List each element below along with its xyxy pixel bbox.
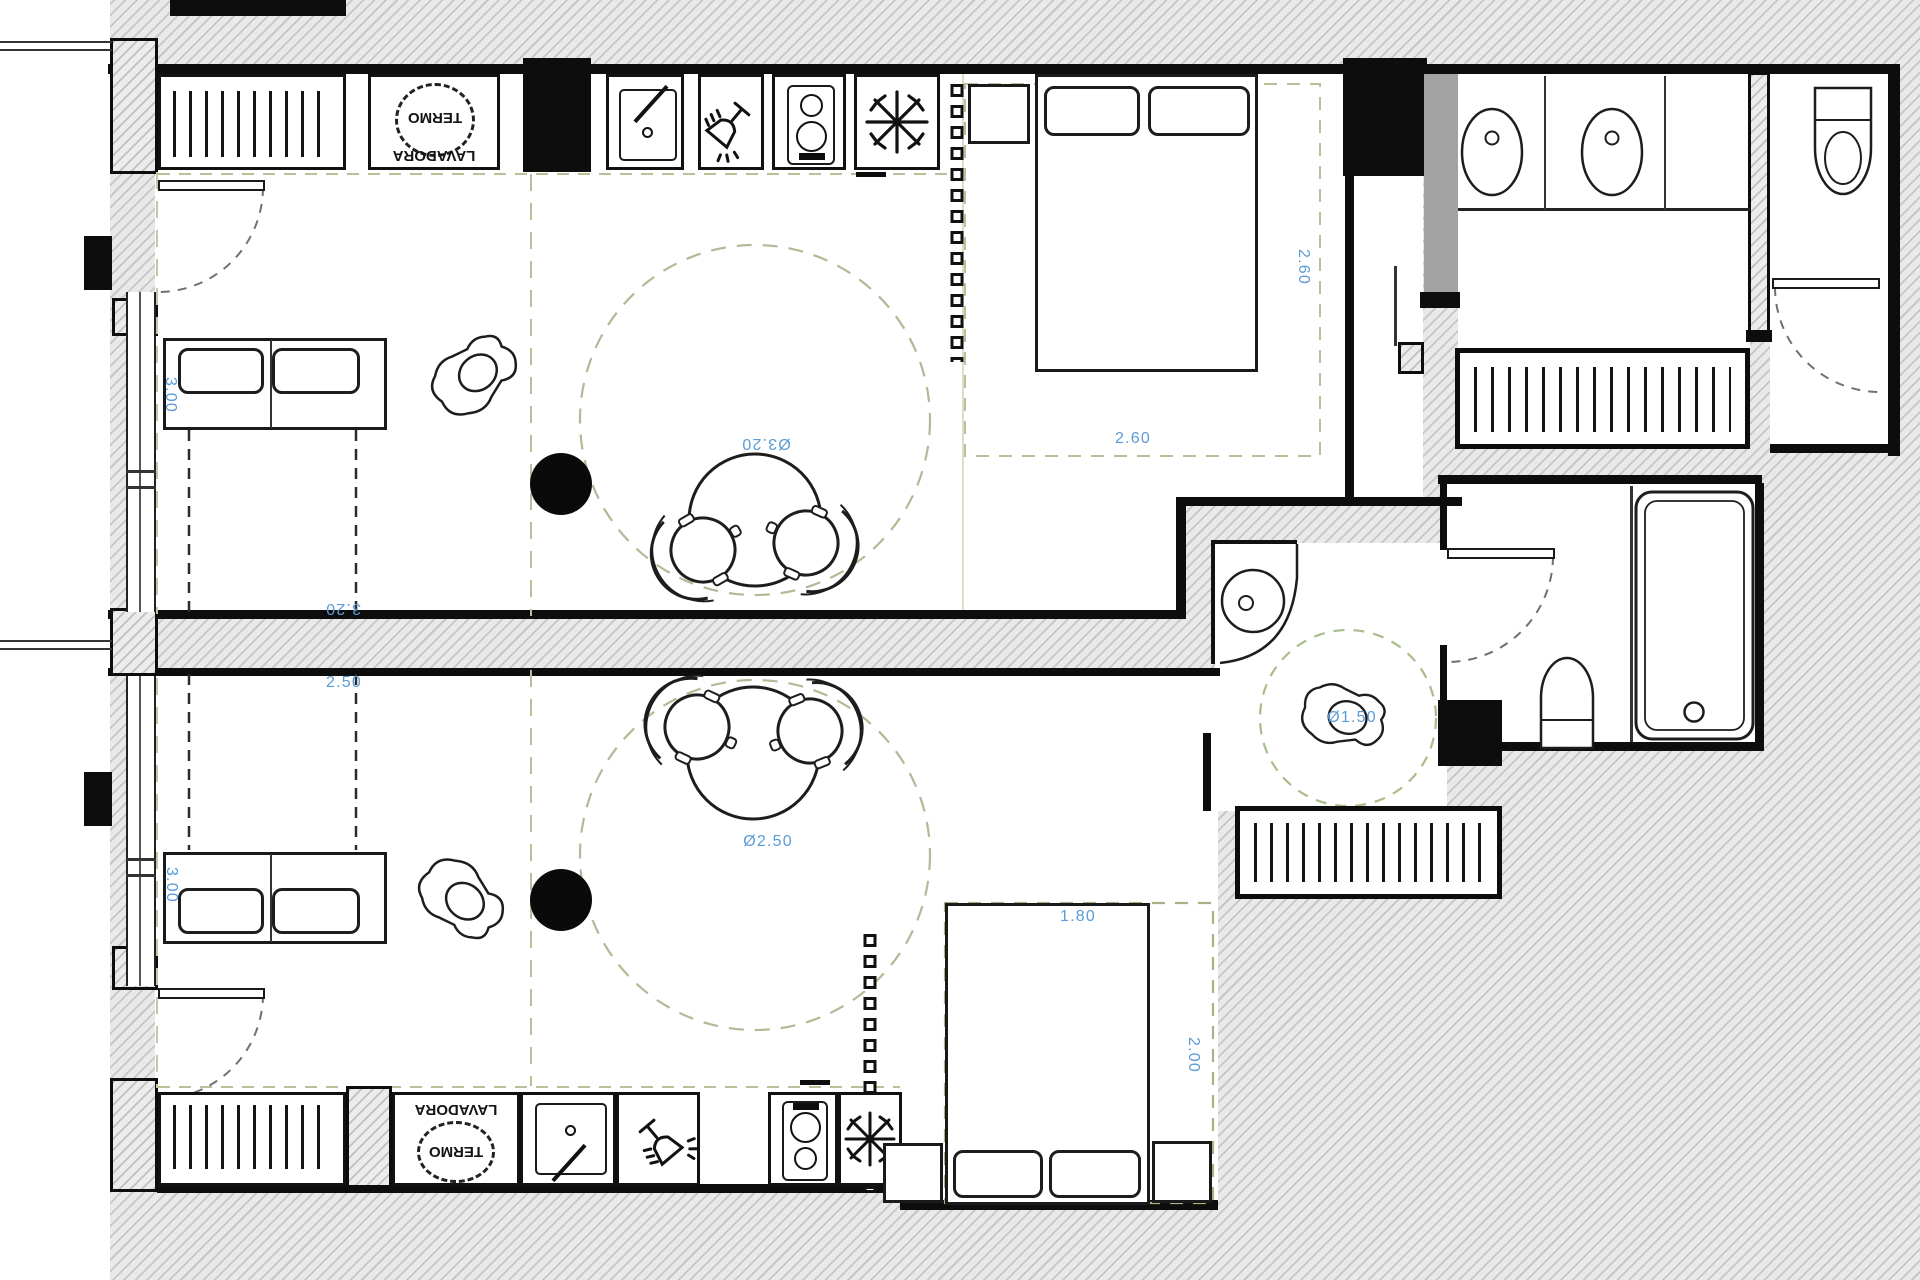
upper-water-heater-box: TERMO LAVADORA <box>368 74 500 170</box>
water-heater-label: TERMO <box>419 1143 493 1160</box>
upper-hob-box <box>772 74 846 170</box>
vanity-sink-right-icon <box>1582 109 1642 195</box>
toilet-top-icon <box>1815 88 1871 194</box>
dim-turning-circle: Ø1.50 <box>1312 709 1392 727</box>
dim-upper-dining-clearance: Ø3.20 <box>726 434 806 452</box>
dishwasher-glass-icon <box>701 77 761 167</box>
upper-sofabed-foldout <box>189 430 356 612</box>
hob-control-bar <box>793 1103 819 1110</box>
lower-sofa-divider <box>270 854 272 942</box>
lower-hall-radiator <box>1235 806 1502 899</box>
counter-tick-upper <box>856 172 886 177</box>
lower-bed-pillow-right <box>1049 1150 1141 1198</box>
lower-entry-door-swing-icon <box>158 994 263 1099</box>
dim-lower-sofa-length: 3.00 <box>162 855 180 915</box>
toilet-bathroom-icon <box>1541 658 1593 748</box>
hob-control-bar <box>799 153 825 160</box>
lower-sofabed-foldout <box>189 674 356 850</box>
upper-sink-box <box>606 74 684 170</box>
radiator-bars-icon <box>1474 367 1731 432</box>
water-heater-label: TERMO <box>397 109 473 126</box>
lower-radiator <box>158 1092 346 1186</box>
hall-radiator <box>1455 348 1750 449</box>
lower-armchair-icon <box>409 847 515 950</box>
upper-freezer-box <box>854 74 940 170</box>
washing-machine-label: LAVADORA <box>395 1101 517 1118</box>
dishwasher-glass-icon <box>619 1095 697 1183</box>
upper-window-tick-2 <box>126 486 156 489</box>
lower-water-heater-box: LAVADORA TERMO <box>392 1092 520 1186</box>
lower-nightstand-right <box>1152 1141 1212 1203</box>
lower-column-round <box>530 869 592 931</box>
upper-radiator <box>158 74 346 170</box>
bathtub-icon <box>1636 492 1753 739</box>
lower-window-tick-2 <box>126 874 156 877</box>
bathroom-door-swing-icon <box>1447 556 1553 662</box>
upper-entry-door-leaf <box>158 180 265 191</box>
upper-sofa-pillow-right <box>272 348 360 394</box>
upper-armchair-icon <box>422 324 528 427</box>
hob-burner-small <box>794 1147 817 1170</box>
lower-entry-door-leaf <box>158 988 265 999</box>
lower-hob-box <box>768 1092 838 1186</box>
upper-sofa-divider <box>270 340 272 428</box>
upper-bed-pillow-right <box>1148 86 1250 136</box>
radiator-bars-icon <box>1254 823 1483 882</box>
lower-nightstand-left <box>883 1143 943 1203</box>
vanity-sink-left-icon <box>1462 109 1522 195</box>
dim-bed-width: 1.80 <box>1040 908 1116 926</box>
dim-upper-sofa-length: 3.00 <box>161 365 179 425</box>
sink-icon <box>619 89 677 161</box>
upper-entry-door-swing-icon <box>158 187 263 292</box>
dim-upper-living-width: 3.20 <box>305 599 381 617</box>
dim-bed-depth: 2.00 <box>1184 1025 1202 1085</box>
lower-sink-box <box>520 1092 616 1186</box>
freezer-snowflake-icon <box>857 77 937 167</box>
upper-window-tick-1 <box>126 470 156 473</box>
washing-machine-label: LAVADORA <box>371 147 497 164</box>
lower-bed-pillow-left <box>953 1150 1043 1198</box>
lower-sofa-pillow-right <box>272 888 360 934</box>
dim-bedroom-width: 2.60 <box>1098 430 1168 448</box>
upper-sofa-pillow-left <box>178 348 264 394</box>
toilet-room-door-leaf <box>1772 278 1880 289</box>
dim-bedroom-depth: 2.60 <box>1294 237 1312 297</box>
corner-washbasin-icon <box>1220 544 1297 663</box>
upper-bed-pillow-left <box>1044 86 1140 136</box>
radiator-bars-icon <box>173 91 331 157</box>
floor-plan-canvas: TERMO LAVADORA <box>0 0 1920 1280</box>
vanity-divider-1 <box>1544 76 1546 210</box>
sink-icon <box>535 1103 607 1175</box>
sink-drain <box>642 127 653 138</box>
dim-lower-dining-clearance: Ø2.50 <box>728 833 808 851</box>
upper-window <box>126 292 156 612</box>
lower-sofa-pillow-left <box>178 888 264 934</box>
upper-dishwasher-box <box>698 74 764 170</box>
vanity-divider-2 <box>1664 76 1666 210</box>
hob-burner-small <box>800 94 823 117</box>
radiator-bars-icon <box>173 1105 331 1169</box>
sink-drain <box>565 1125 576 1136</box>
hob-burner-large <box>796 121 827 152</box>
dim-lower-living-width: 2.50 <box>306 674 382 692</box>
lower-dishwasher-box <box>616 1092 700 1186</box>
lower-window-tick-1 <box>126 858 156 861</box>
vanity-counter-front <box>1458 208 1750 211</box>
upper-column-round <box>530 453 592 515</box>
lower-kitchen-pier <box>346 1086 392 1188</box>
upper-nightstand <box>968 84 1030 144</box>
hob-burner-large <box>790 1112 821 1143</box>
counter-tick-lower <box>800 1080 830 1085</box>
toilet-room-door-swing-icon <box>1775 287 1880 392</box>
lower-window <box>126 676 156 986</box>
bathroom-door-leaf <box>1447 548 1555 559</box>
